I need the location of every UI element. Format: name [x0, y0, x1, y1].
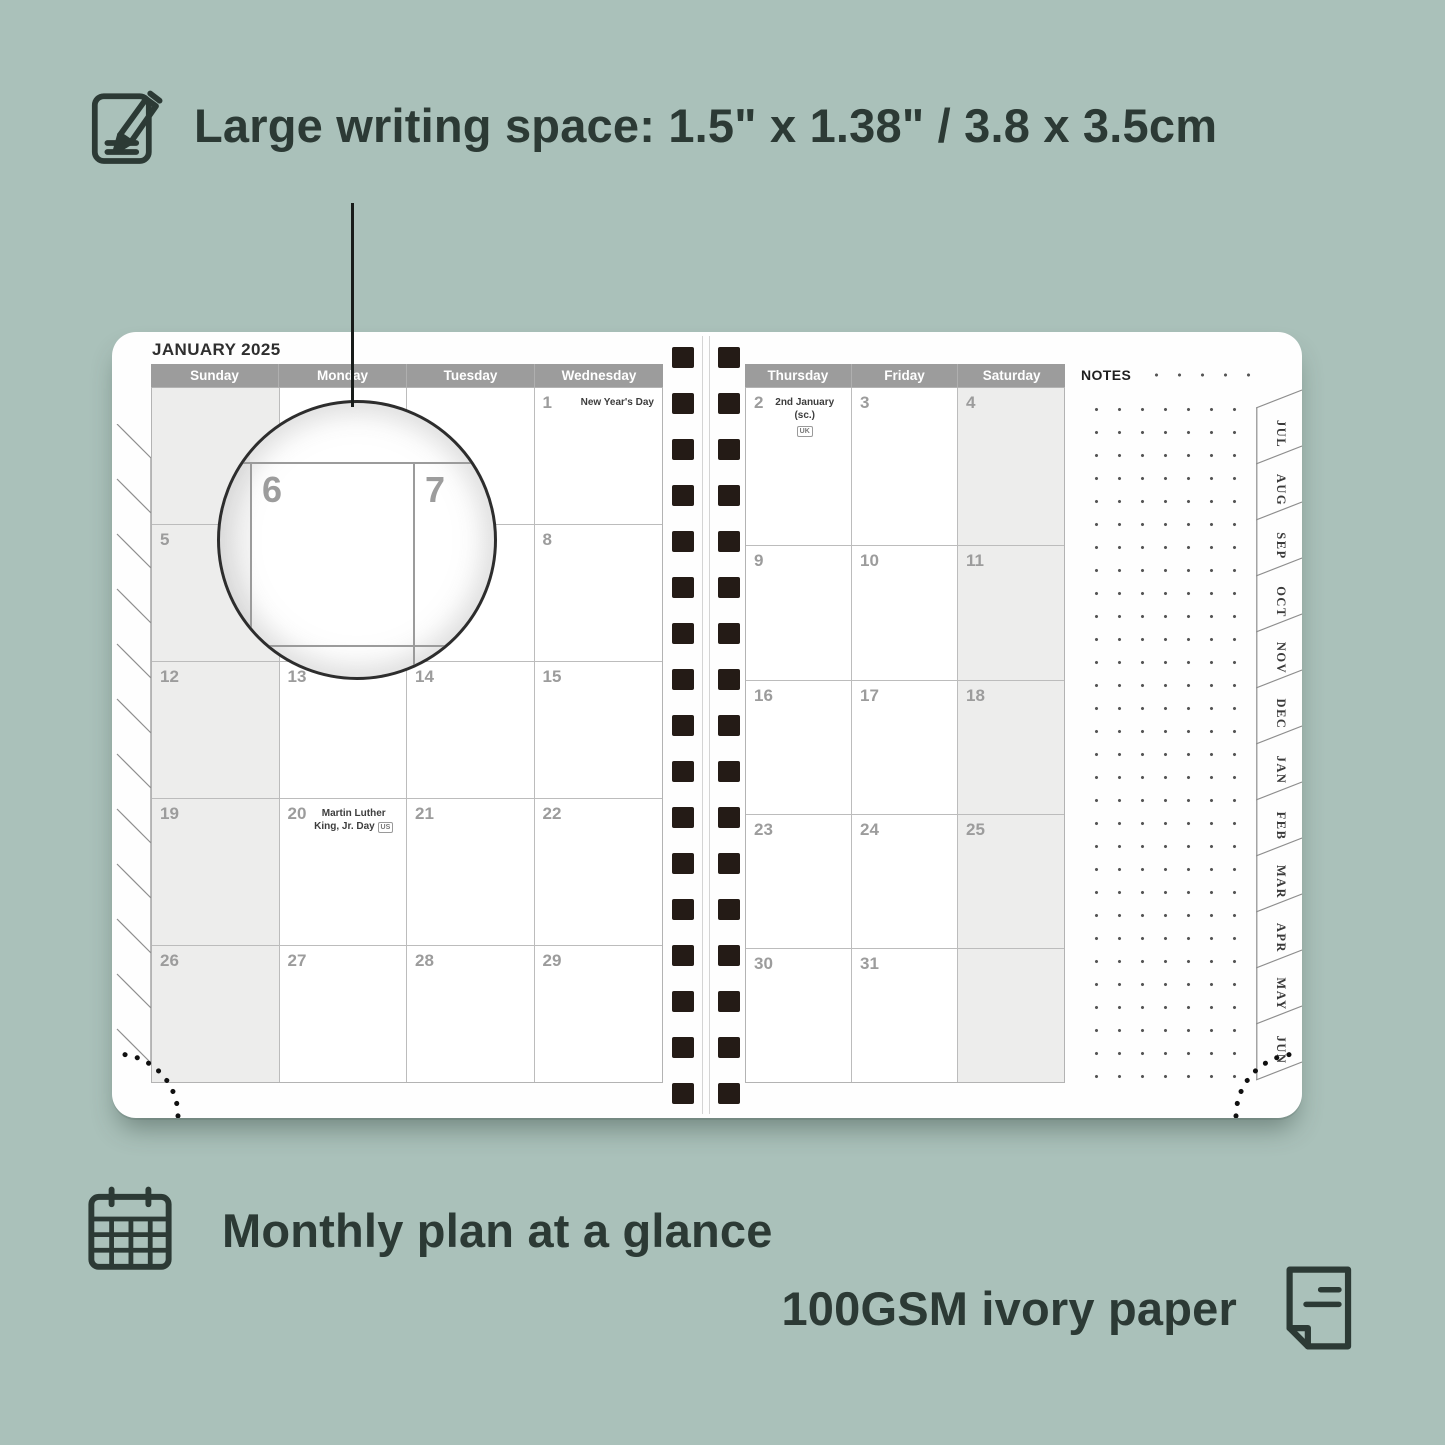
spiral-hole: [672, 899, 694, 920]
spiral-hole: [672, 531, 694, 552]
month-tab-may: MAY: [1274, 977, 1288, 1010]
day-header-friday: Friday: [852, 364, 959, 387]
day-cell-28: 28: [407, 946, 535, 1082]
magnified-day-7: 7: [425, 469, 445, 511]
country-badge: UK: [797, 426, 813, 437]
hero-title: Large writing space: 1.5" x 1.38" / 3.8 …: [194, 98, 1217, 153]
day-cell-8: 8: [535, 525, 663, 662]
left-page-edge-tabs: [116, 424, 154, 1076]
day-cell-18: 18: [958, 681, 1064, 815]
magnifier-pointer-line: [351, 203, 354, 407]
day-header-monday: Monday: [279, 364, 407, 387]
magnified-day-6: 6: [262, 469, 282, 511]
day-cell-11: 11: [958, 546, 1064, 680]
country-badge: US: [378, 822, 394, 833]
badge-row: UK: [766, 424, 843, 437]
spiral-hole: [718, 715, 740, 736]
magnified-grid-line: [220, 462, 494, 464]
day-number: 3: [860, 394, 869, 413]
day-number: 8: [543, 531, 552, 550]
spiral-hole: [672, 1083, 694, 1104]
calendar-grid-right: ThursdayFridaySaturday22nd January (sc.)…: [745, 364, 1065, 1083]
day-number: 11: [966, 552, 984, 571]
day-header-row: ThursdayFridaySaturday: [745, 364, 1065, 387]
day-cell-4: 4: [958, 388, 1064, 546]
spiral-hole: [718, 393, 740, 414]
day-cell-13: 13: [280, 662, 408, 799]
spiral-hole: [672, 439, 694, 460]
pencil-note-icon: [84, 78, 174, 172]
notes-dot-row: [1139, 362, 1253, 388]
day-number: 26: [160, 952, 179, 971]
day-number: 1: [543, 394, 552, 413]
month-tab-dec: DEC: [1274, 699, 1288, 730]
day-cell-31: 31: [852, 949, 958, 1082]
feature-monthly-plan-text: Monthly plan at a glance: [222, 1203, 773, 1258]
day-cell-3: 3: [852, 388, 958, 546]
day-cell-21: 21: [407, 799, 535, 945]
day-cell-27: 27: [280, 946, 408, 1082]
day-header-sunday: Sunday: [151, 364, 279, 387]
feature-paper-text: 100GSM ivory paper: [781, 1281, 1237, 1336]
day-number: 28: [415, 952, 434, 971]
month-tab-nov: NOV: [1274, 642, 1288, 674]
day-cell-empty: [958, 949, 1064, 1082]
day-header-wednesday: Wednesday: [535, 364, 663, 387]
day-number: 24: [860, 821, 879, 840]
holiday-label: 2nd January (sc.)UK: [766, 396, 843, 437]
day-cell-24: 24: [852, 815, 958, 949]
day-number: 18: [966, 687, 985, 706]
month-tab-aug: AUG: [1274, 474, 1288, 506]
spiral-hole: [672, 1037, 694, 1058]
day-cell-15: 15: [535, 662, 663, 799]
spiral-hole: [718, 853, 740, 874]
month-tab-feb: FEB: [1274, 812, 1288, 841]
day-number: 13: [288, 668, 307, 687]
day-number: 25: [966, 821, 985, 840]
spiral-hole: [672, 485, 694, 506]
month-tab-oct: OCT: [1274, 586, 1288, 618]
day-number: 22: [543, 805, 562, 824]
spiral-hole: [672, 577, 694, 598]
spiral-hole: [672, 715, 694, 736]
spiral-hole: [672, 669, 694, 690]
product-image: Large writing space: 1.5" x 1.38" / 3.8 …: [0, 0, 1445, 1445]
day-number: 15: [543, 668, 562, 687]
spiral-hole: [718, 945, 740, 966]
calendar-body: 22nd January (sc.)UK34910111617182324253…: [745, 387, 1065, 1083]
day-number: 12: [160, 668, 179, 687]
spiral-hole: [718, 577, 740, 598]
day-cell-20: 20Martin Luther King, Jr. Day US: [280, 799, 408, 945]
day-cell-1: 1New Year's Day: [535, 388, 663, 525]
paper-sheet-icon: [1275, 1262, 1359, 1354]
feature-monthly-plan: Monthly plan at a glance: [84, 1184, 773, 1276]
spiral-hole: [718, 439, 740, 460]
month-title: JANUARY 2025: [152, 340, 281, 360]
stitch-arc-right: [1212, 1028, 1302, 1118]
day-header-row: SundayMondayTuesdayWednesday: [151, 364, 663, 387]
spiral-hole: [672, 761, 694, 782]
holiday-label: New Year's Day: [581, 396, 654, 409]
spiral-hole: [718, 531, 740, 552]
day-cell-10: 10: [852, 546, 958, 680]
spiral-hole: [718, 623, 740, 644]
notes-section: NOTES: [1081, 362, 1253, 1084]
month-tab-mar: MAR: [1274, 865, 1288, 899]
spiral-hole: [718, 991, 740, 1012]
spiral-hole: [672, 991, 694, 1012]
day-number: 27: [288, 952, 307, 971]
day-header-saturday: Saturday: [958, 364, 1065, 387]
month-tab-apr: APR: [1274, 923, 1288, 953]
magnified-grid-line: [250, 462, 252, 677]
spiral-hole: [672, 853, 694, 874]
notes-label: NOTES: [1081, 367, 1131, 383]
day-number: 19: [160, 805, 179, 824]
day-cell-22: 22: [535, 799, 663, 945]
spiral-hole: [672, 945, 694, 966]
day-number: 14: [415, 668, 434, 687]
day-cell-17: 17: [852, 681, 958, 815]
day-cell-12: 12: [152, 662, 280, 799]
feature-paper: 100GSM ivory paper: [781, 1262, 1359, 1354]
magnifier-circle: 6 7: [217, 400, 497, 680]
day-cell-25: 25: [958, 815, 1064, 949]
day-number: 5: [160, 531, 169, 550]
day-number: 17: [860, 687, 879, 706]
spiral-hole: [672, 347, 694, 368]
notes-dot-grid: [1081, 390, 1253, 1084]
day-number: 4: [966, 394, 975, 413]
magnified-sunday-shade: [220, 403, 250, 677]
spiral-hole: [672, 393, 694, 414]
calendar-grid-icon: [84, 1184, 176, 1276]
day-number: 21: [415, 805, 434, 824]
stitch-arc-left: [112, 1028, 202, 1118]
day-cell-19: 19: [152, 799, 280, 945]
spiral-hole: [718, 347, 740, 368]
day-number: 20: [288, 805, 307, 824]
day-number: 29: [543, 952, 562, 971]
notes-header: NOTES: [1081, 362, 1253, 388]
day-number: 10: [860, 552, 879, 571]
magnified-grid-line: [413, 462, 415, 677]
day-cell-14: 14: [407, 662, 535, 799]
spiral-hole: [718, 1083, 740, 1104]
day-cell-29: 29: [535, 946, 663, 1082]
spiral-hole: [718, 669, 740, 690]
day-header-tuesday: Tuesday: [407, 364, 535, 387]
month-tabs: JULAUGSEPOCTNOVDECJANFEBMARAPRMAYJUN: [1256, 386, 1302, 1086]
planner-spread: JANUARY 2025 SundayMondayTuesdayWednesda…: [112, 332, 1302, 1118]
month-tab-jan: JAN: [1274, 756, 1288, 785]
spiral-hole: [672, 807, 694, 828]
hero-banner: Large writing space: 1.5" x 1.38" / 3.8 …: [84, 78, 1217, 172]
magnified-grid-line: [220, 645, 494, 647]
month-tab-sep: SEP: [1274, 532, 1288, 559]
spiral-hole: [672, 623, 694, 644]
holiday-label: Martin Luther King, Jr. Day US: [309, 807, 398, 833]
spiral-hole: [718, 1037, 740, 1058]
spiral-hole: [718, 899, 740, 920]
spiral-hole: [718, 485, 740, 506]
spiral-hole: [718, 761, 740, 782]
month-tab-jul: JUL: [1274, 420, 1288, 448]
day-number: 31: [860, 955, 879, 974]
spiral-hole: [718, 807, 740, 828]
spiral-binding: [672, 347, 764, 1107]
